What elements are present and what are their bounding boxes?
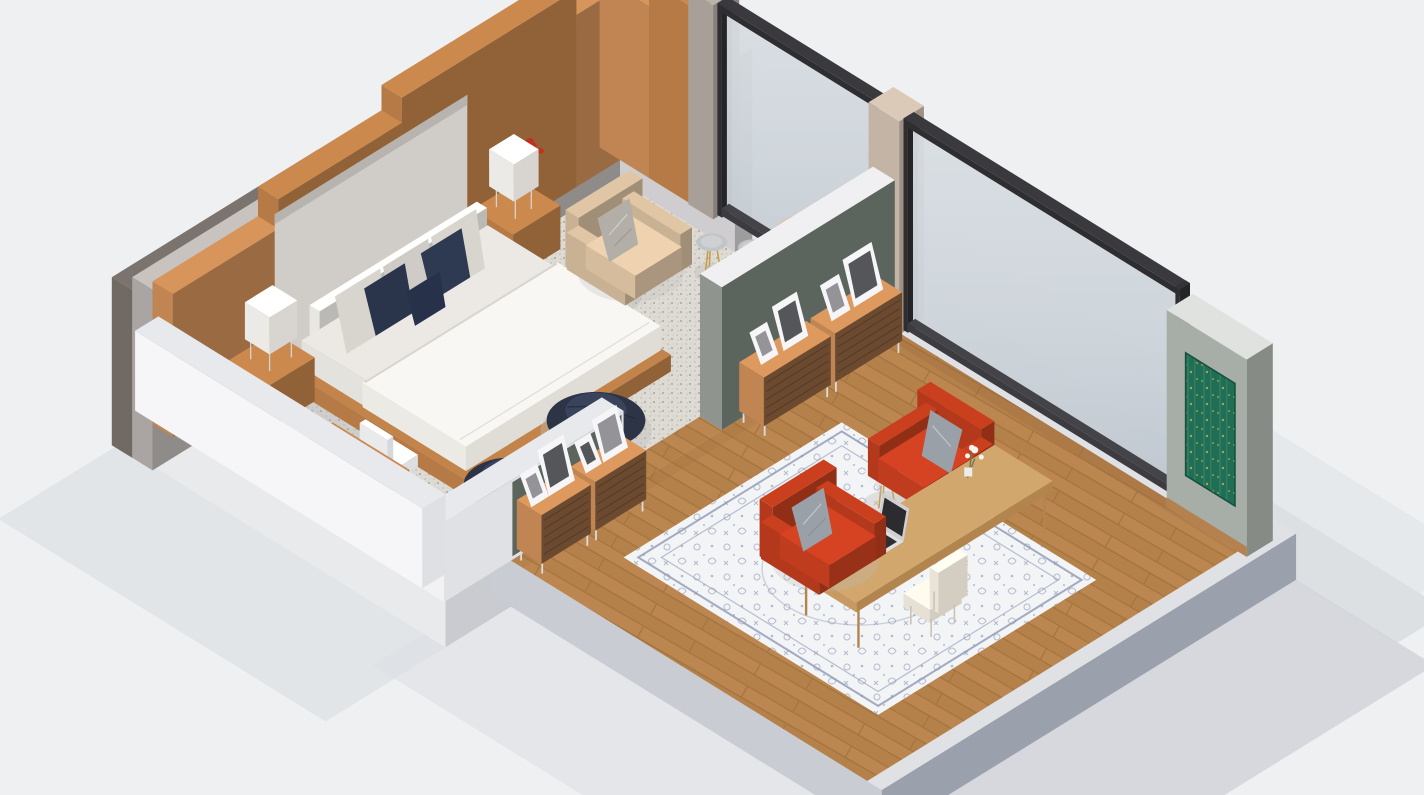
floorplan-canvas xyxy=(0,0,1424,795)
isometric-floorplan-render xyxy=(0,0,1424,795)
